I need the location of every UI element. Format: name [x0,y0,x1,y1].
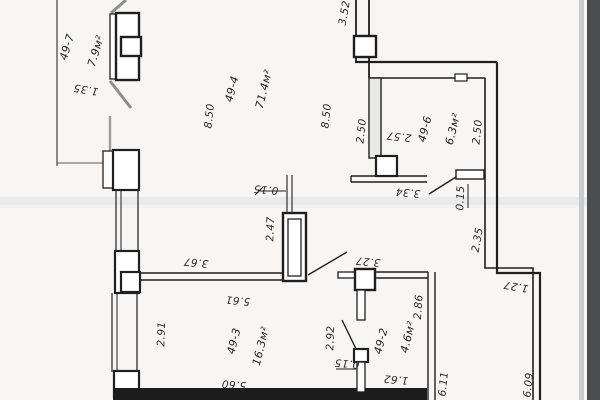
dimension-8-50-right: 8.50 [320,103,333,129]
dimension-2-47: 2.47 [265,216,276,241]
dimension-3-34: 3.34 [395,186,421,199]
scan-edge [579,0,600,400]
dimension-2-57: 2.57 [386,129,412,142]
dimension-1-62: 1.62 [383,373,409,386]
bottom-exterior-wall [113,388,427,400]
dimension-6-09: 6.09 [522,372,535,398]
pillar [355,269,375,290]
dimension-5-61: 5.61 [225,294,251,307]
left-exterior-wall [103,150,140,397]
dimension-2-91: 2.91 [156,321,167,346]
dimension-0-15-mid: 0.15 [253,183,279,196]
dimension-3-27: 3.27 [355,255,381,268]
window-bay-lower [112,293,137,372]
dimension-0-15-low: 0.15 [334,357,360,370]
pillar [376,156,397,176]
top-middle-wall [354,0,376,78]
partition-49-3-top [139,273,283,280]
dimension-8-50-left: 8.50 [203,103,216,129]
dimension-2-50-left: 2.50 [355,118,368,144]
floor-plan-scan: 49-7 7.9м² 1.35 49-4 71.4м² 8.50 8.50 3.… [0,0,600,400]
dimension-0-15-right: 0.15 [455,185,466,210]
dimension-2-50-right: 2.50 [471,119,484,145]
dimension-2-92: 2.92 [325,325,336,350]
glazed-partition [369,78,381,158]
dimension-2-86: 2.86 [413,294,425,320]
balcony-49-7 [110,0,141,151]
scan-streak [0,197,600,208]
pillar [113,150,139,190]
dimension-6-11: 6.11 [437,371,450,397]
pillar [354,36,376,57]
door-swing-49-6 [429,177,456,194]
dimension-5-60: 5.60 [221,378,247,391]
dimension-3-67: 3.67 [183,256,209,269]
